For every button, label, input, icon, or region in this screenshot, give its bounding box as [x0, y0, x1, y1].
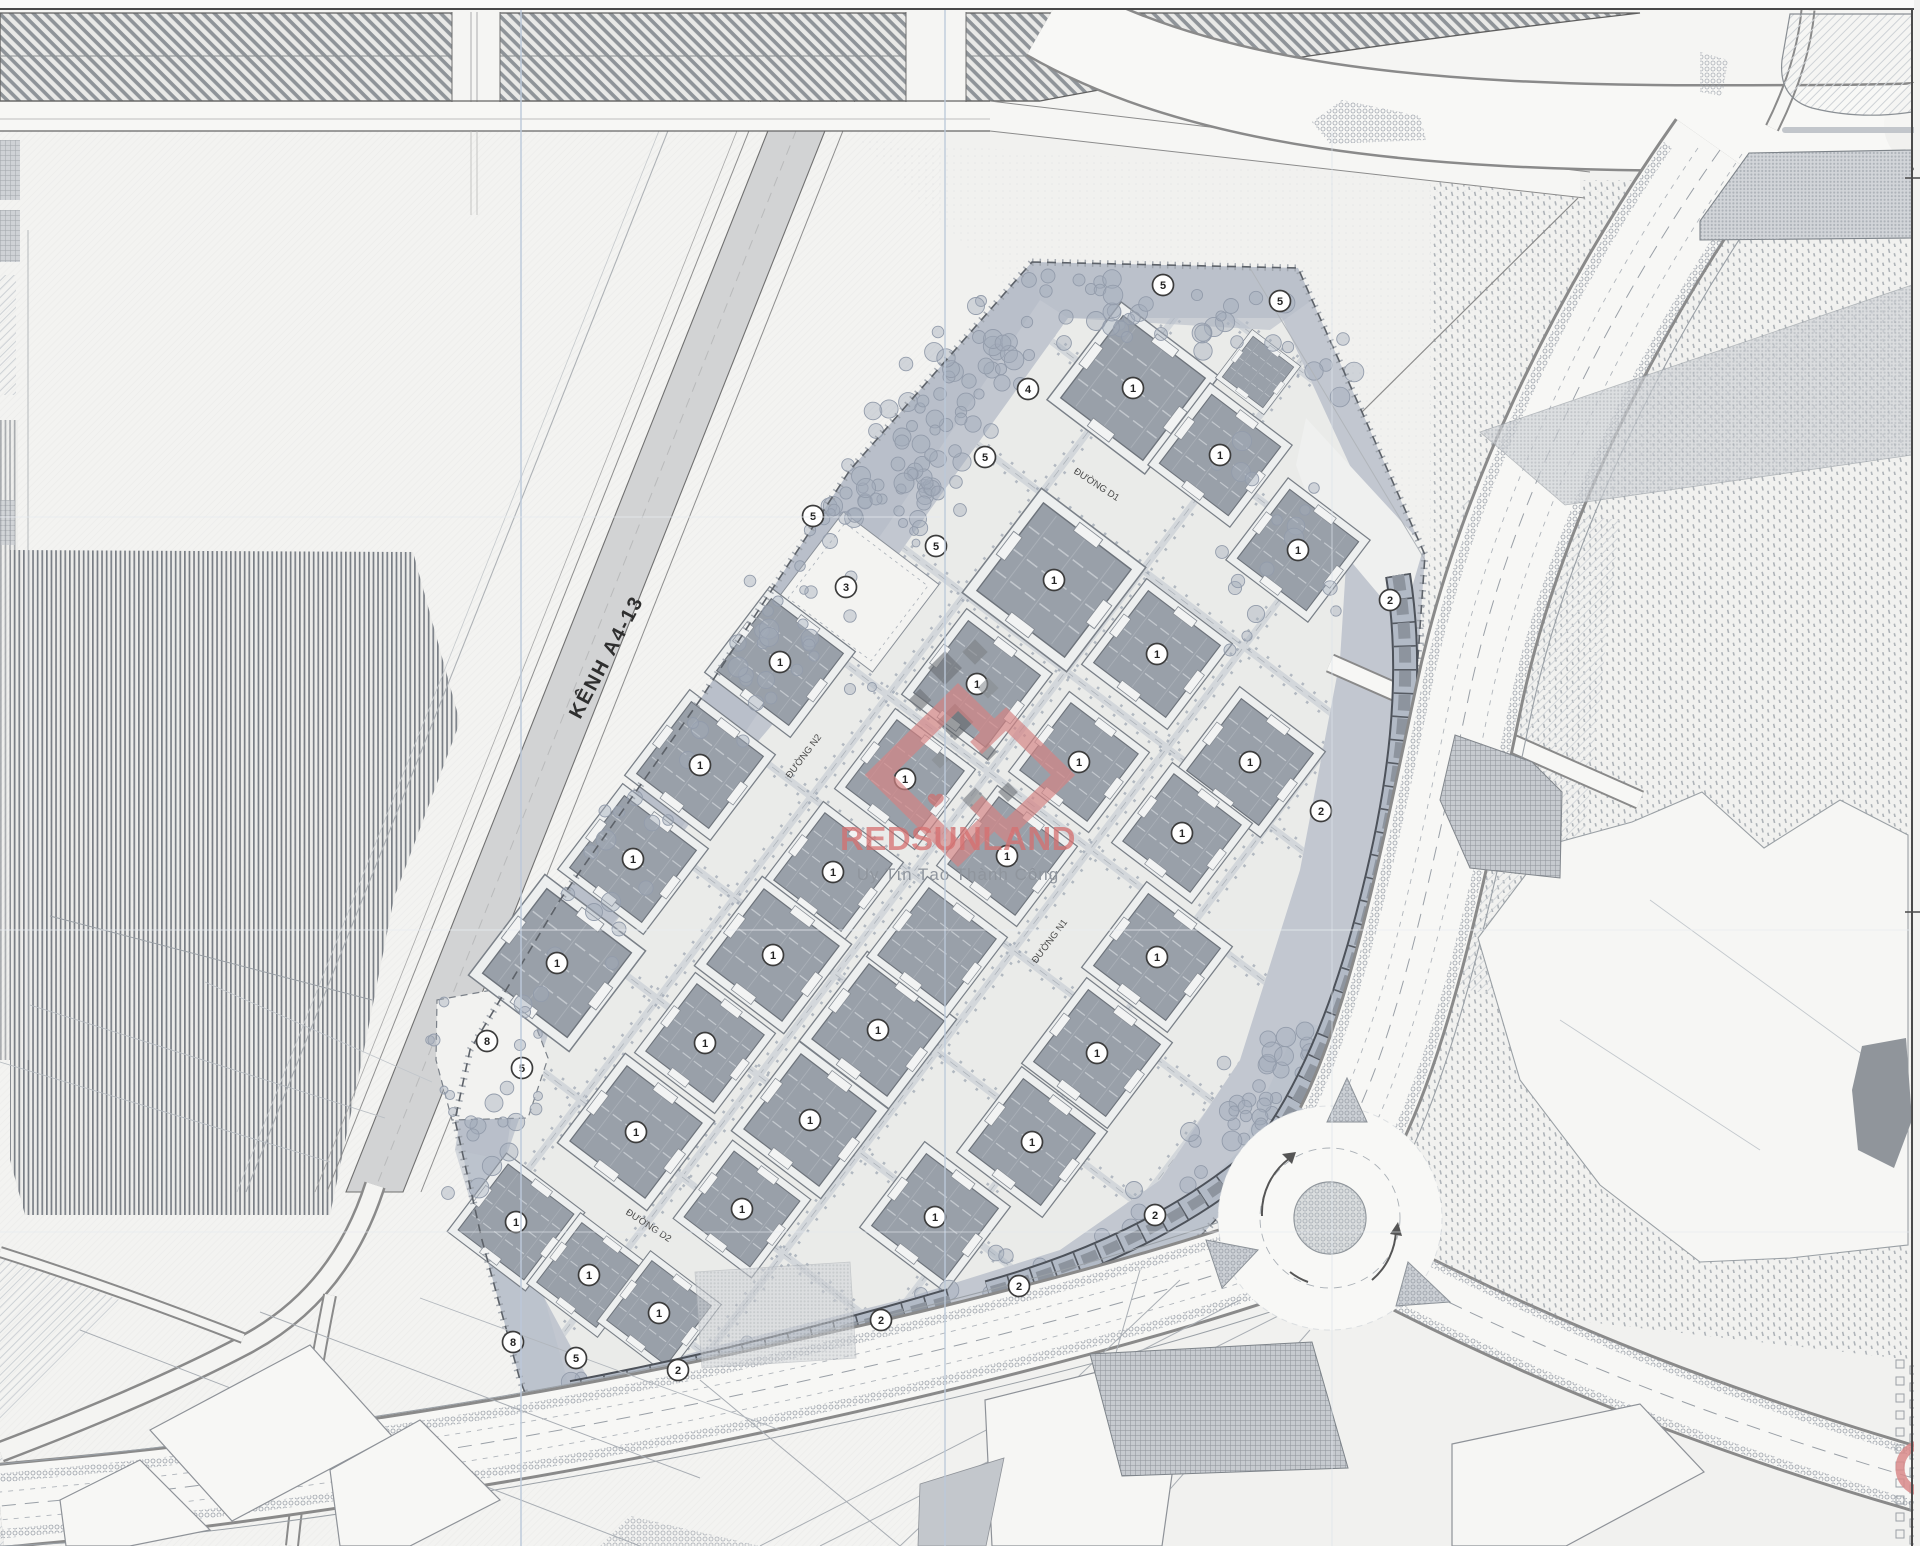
- svg-text:1: 1: [1154, 649, 1160, 661]
- svg-text:1: 1: [830, 867, 836, 879]
- svg-text:5: 5: [1277, 296, 1283, 308]
- svg-text:1: 1: [1130, 383, 1136, 395]
- svg-text:REDSUNLAND: REDSUNLAND: [840, 820, 1076, 857]
- svg-text:3: 3: [843, 582, 849, 594]
- svg-text:1: 1: [1247, 757, 1253, 769]
- svg-text:1: 1: [1029, 1137, 1035, 1149]
- svg-text:1: 1: [875, 1025, 881, 1037]
- svg-text:1: 1: [777, 657, 783, 669]
- svg-text:1: 1: [697, 760, 703, 772]
- svg-text:2: 2: [1387, 595, 1393, 607]
- svg-text:1: 1: [656, 1308, 662, 1320]
- svg-text:2: 2: [1318, 806, 1324, 818]
- svg-text:1: 1: [1217, 450, 1223, 462]
- svg-text:Uy Tín Tạo Thành Công: Uy Tín Tạo Thành Công: [857, 865, 1059, 884]
- svg-text:5: 5: [982, 452, 988, 464]
- svg-text:5: 5: [519, 1063, 525, 1075]
- svg-text:2: 2: [1152, 1210, 1158, 1222]
- svg-text:1: 1: [770, 950, 776, 962]
- svg-text:1: 1: [1295, 545, 1301, 557]
- svg-text:1: 1: [1179, 828, 1185, 840]
- svg-text:1: 1: [739, 1204, 745, 1216]
- svg-text:1: 1: [702, 1038, 708, 1050]
- svg-text:1: 1: [902, 774, 908, 786]
- svg-text:5: 5: [933, 541, 939, 553]
- svg-text:5: 5: [1160, 280, 1166, 292]
- svg-text:1: 1: [513, 1217, 519, 1229]
- svg-text:2: 2: [878, 1315, 884, 1327]
- svg-text:1: 1: [586, 1270, 592, 1282]
- svg-text:1: 1: [633, 1127, 639, 1139]
- svg-text:1: 1: [1051, 575, 1057, 587]
- svg-text:1: 1: [807, 1115, 813, 1127]
- svg-text:1: 1: [554, 958, 560, 970]
- svg-text:4: 4: [1025, 384, 1032, 396]
- svg-text:2: 2: [1016, 1281, 1022, 1293]
- svg-text:2: 2: [675, 1365, 681, 1377]
- svg-text:8: 8: [510, 1337, 516, 1349]
- svg-text:1: 1: [1094, 1048, 1100, 1060]
- svg-text:8: 8: [484, 1036, 490, 1048]
- svg-text:1: 1: [1154, 952, 1160, 964]
- svg-text:1: 1: [630, 854, 636, 866]
- svg-text:1: 1: [1076, 757, 1082, 769]
- svg-text:1: 1: [932, 1212, 938, 1224]
- svg-text:5: 5: [573, 1353, 579, 1365]
